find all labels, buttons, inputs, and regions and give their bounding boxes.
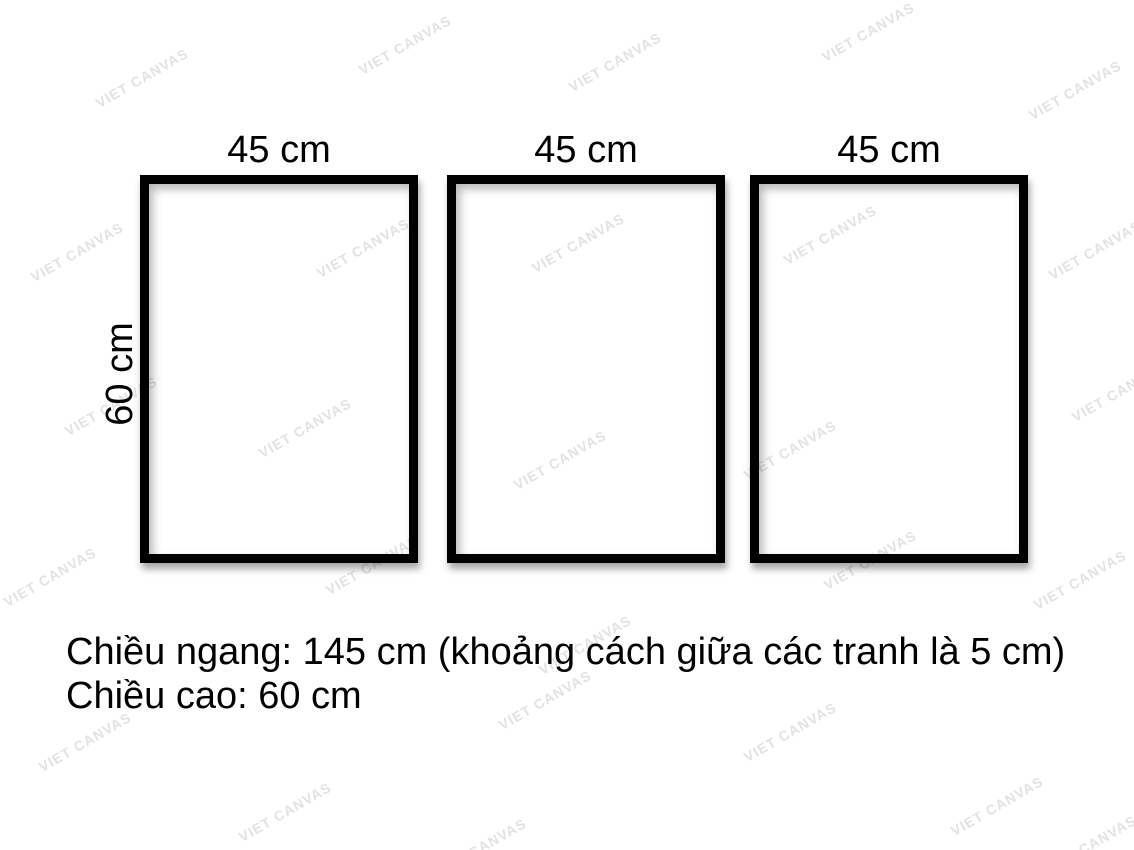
- watermark-text: VIET CANVAS: [431, 815, 529, 850]
- watermark-text: VIET CANVAS: [1069, 359, 1134, 425]
- caption-line-height: Chiều cao: 60 cm: [66, 674, 1065, 718]
- size-diagram: VIET CANVASVIET CANVASVIET CANVASVIET CA…: [0, 0, 1134, 850]
- watermark-text: VIET CANVAS: [1026, 57, 1124, 123]
- frame-3-width-label: 45 cm: [750, 128, 1028, 172]
- watermark-text: VIET CANVAS: [1, 544, 99, 610]
- watermark-text: VIET CANVAS: [1041, 812, 1134, 850]
- frame-2: [447, 175, 725, 563]
- watermark-text: VIET CANVAS: [356, 12, 454, 78]
- frame-height-label: 60 cm: [100, 312, 140, 436]
- watermark-text: VIET CANVAS: [236, 779, 334, 845]
- watermark-text: VIET CANVAS: [566, 29, 664, 95]
- frame-2-width-label: 45 cm: [447, 128, 725, 172]
- watermark-text: VIET CANVAS: [819, 0, 917, 65]
- caption: Chiều ngang: 145 cm (khoảng cách giữa cá…: [66, 630, 1065, 718]
- frame-1: [140, 175, 418, 563]
- watermark-text: VIET CANVAS: [1031, 547, 1129, 613]
- watermark-text: VIET CANVAS: [28, 219, 126, 285]
- watermark-text: VIET CANVAS: [36, 709, 134, 775]
- watermark-text: VIET CANVAS: [1046, 217, 1134, 283]
- watermark-text: VIET CANVAS: [948, 773, 1046, 839]
- watermark-text: VIET CANVAS: [93, 45, 191, 111]
- frame-3: [750, 175, 1028, 563]
- caption-line-width: Chiều ngang: 145 cm (khoảng cách giữa cá…: [66, 630, 1065, 674]
- frame-1-width-label: 45 cm: [140, 128, 418, 172]
